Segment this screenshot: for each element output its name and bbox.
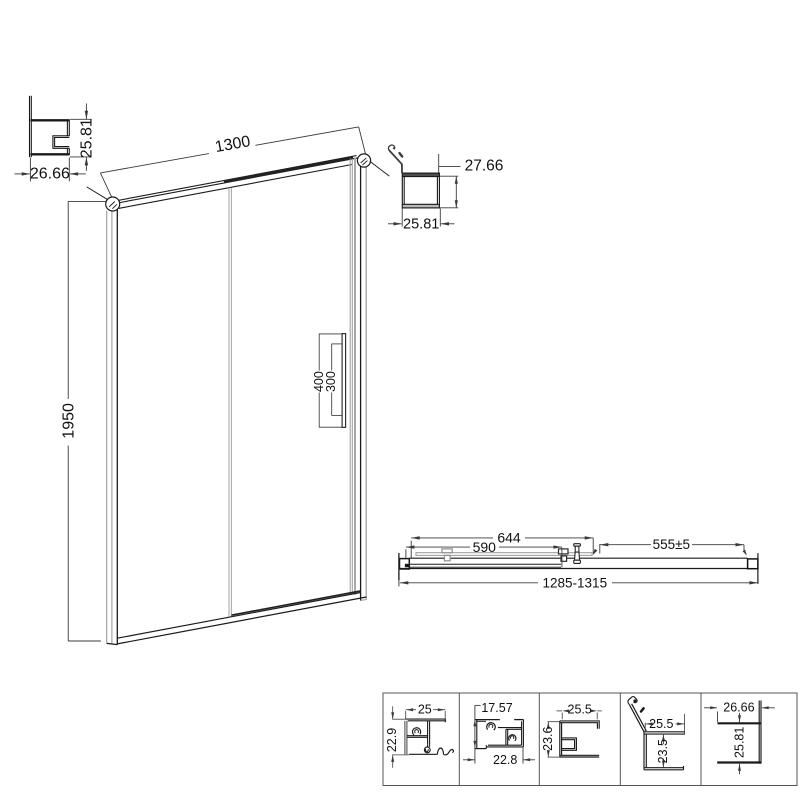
svg-text:17.57: 17.57: [481, 701, 512, 715]
svg-text:25.81: 25.81: [403, 216, 439, 232]
svg-text:26.66: 26.66: [723, 701, 754, 715]
svg-text:1300: 1300: [214, 133, 252, 156]
svg-text:25.81: 25.81: [733, 727, 747, 758]
svg-text:25.81: 25.81: [78, 118, 95, 158]
svg-text:23.5: 23.5: [656, 739, 670, 763]
svg-text:22.8: 22.8: [493, 753, 517, 767]
svg-text:25: 25: [418, 703, 432, 717]
svg-text:25.5: 25.5: [649, 717, 673, 731]
svg-text:590: 590: [473, 539, 497, 555]
svg-text:1285-1315: 1285-1315: [543, 576, 608, 591]
svg-text:300: 300: [324, 371, 338, 392]
svg-text:555±5: 555±5: [653, 537, 690, 552]
svg-text:1950: 1950: [60, 403, 77, 439]
svg-text:644: 644: [497, 530, 521, 546]
svg-text:27.66: 27.66: [465, 158, 504, 175]
svg-text:26.66: 26.66: [30, 166, 70, 183]
svg-text:23.6: 23.6: [541, 726, 555, 750]
svg-text:25.5: 25.5: [568, 703, 592, 717]
svg-text:22.9: 22.9: [385, 728, 399, 752]
